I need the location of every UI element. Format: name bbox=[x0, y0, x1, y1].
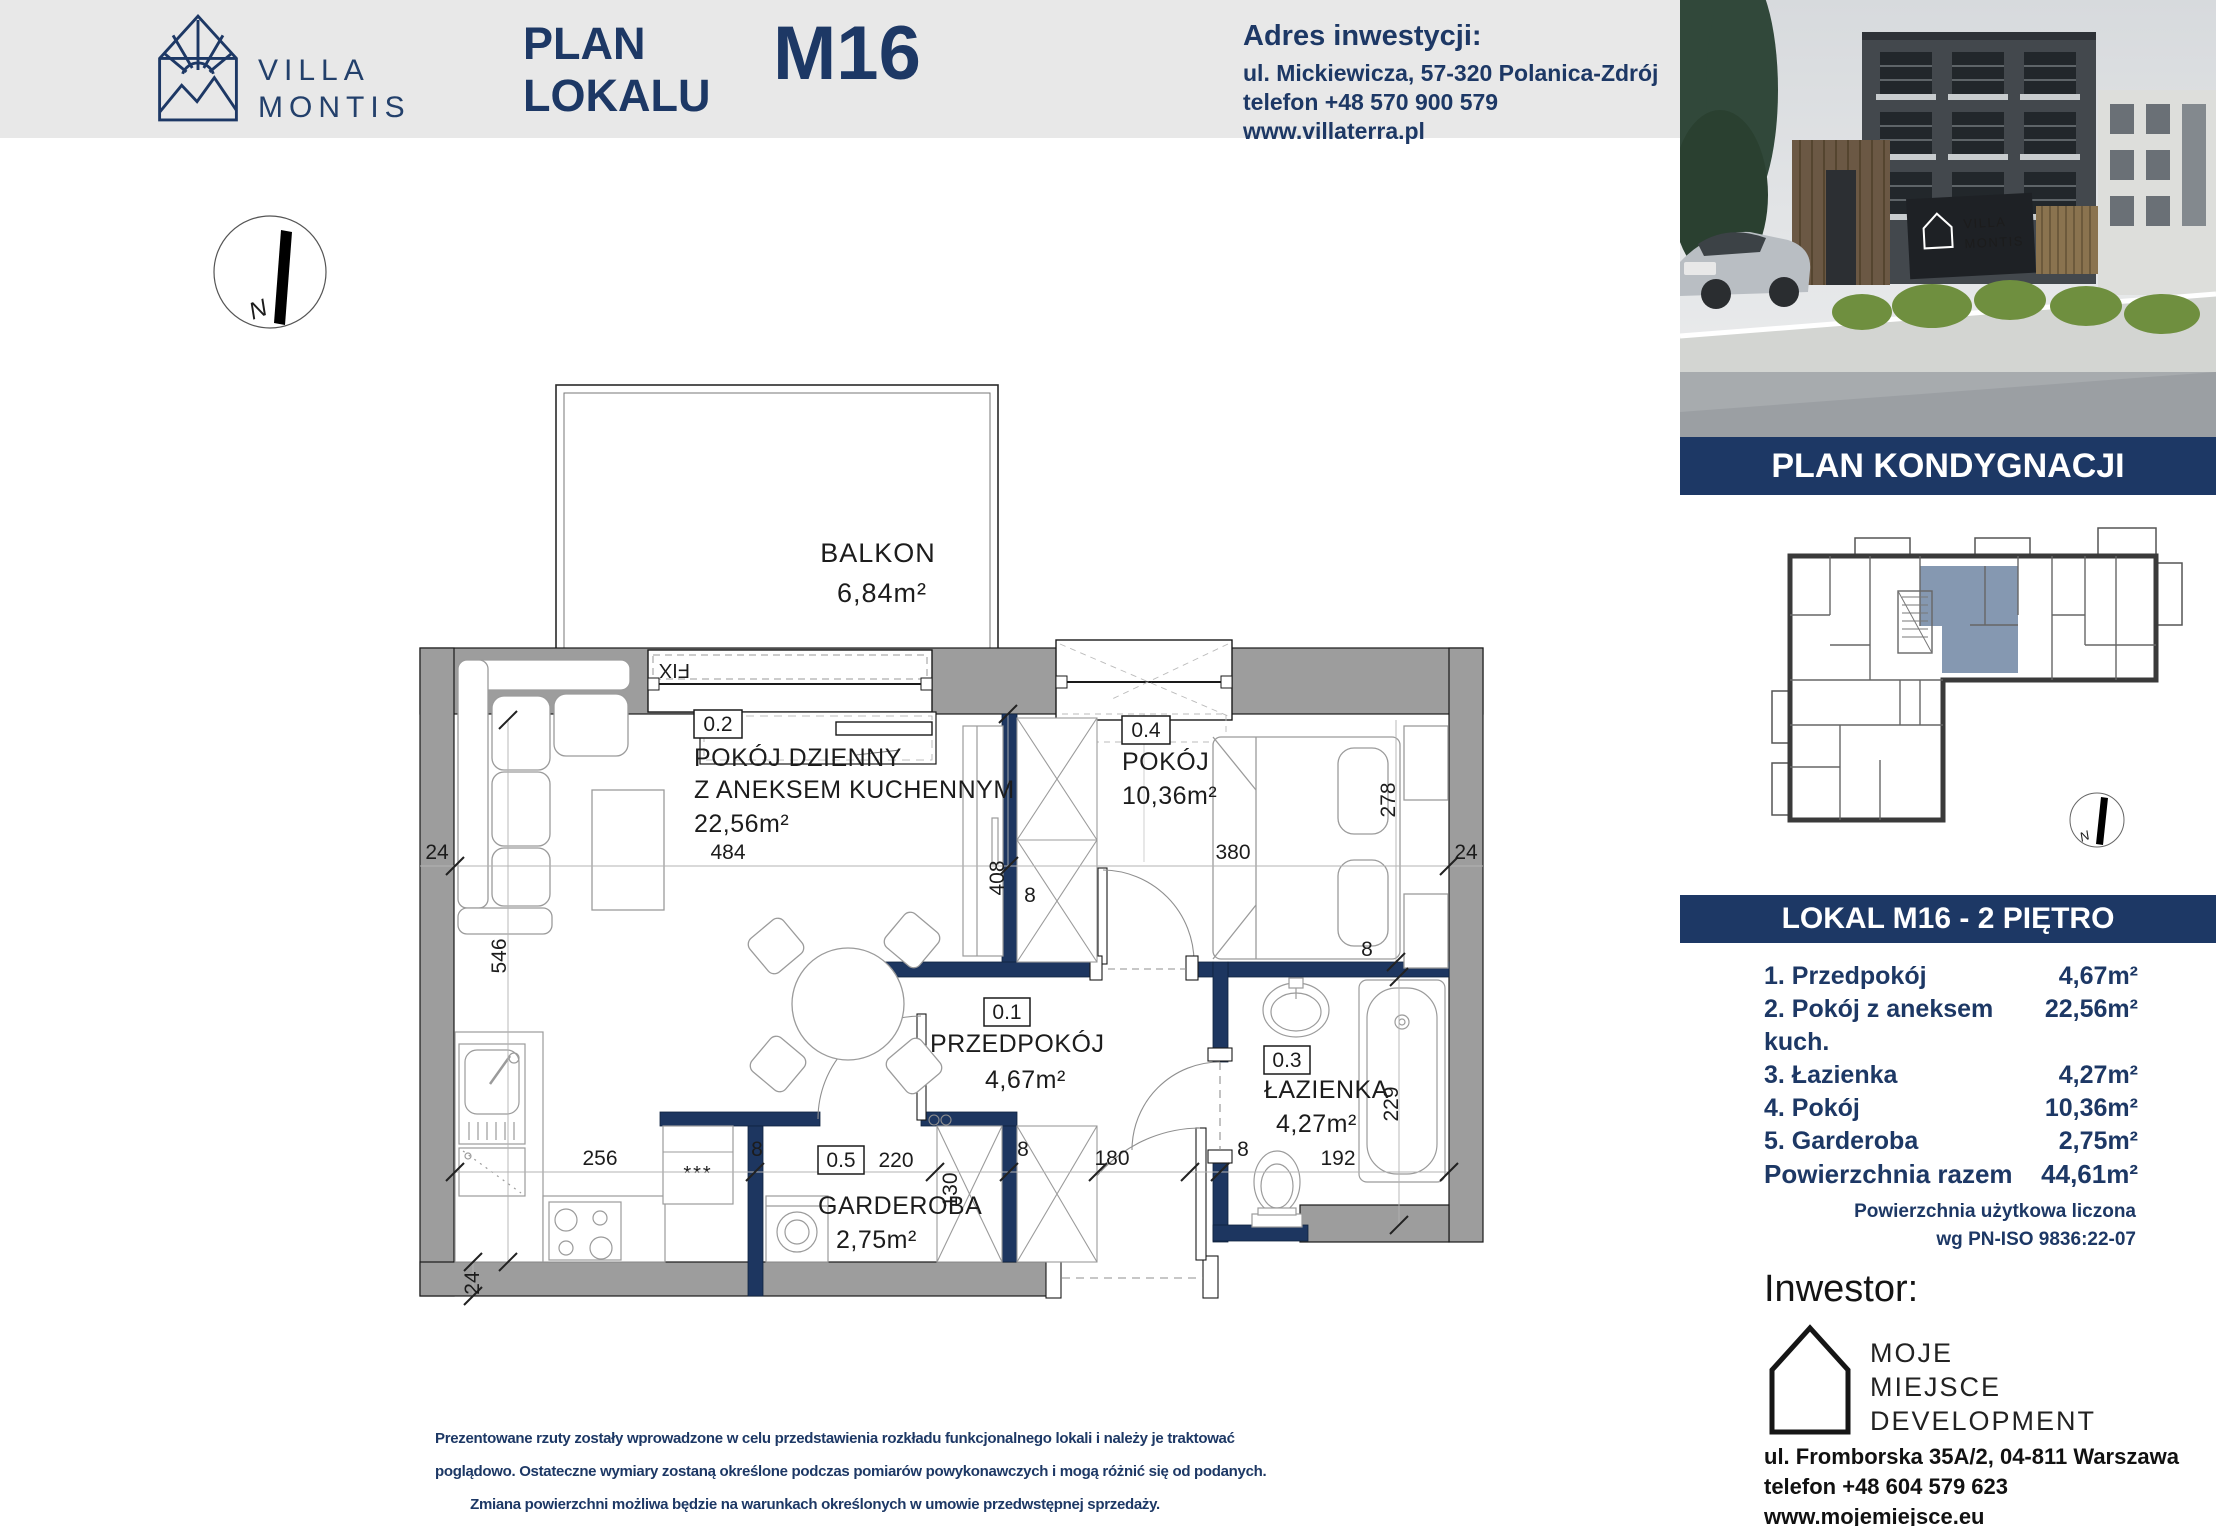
dining-table bbox=[745, 909, 945, 1097]
balcony-label: BALKON bbox=[820, 538, 936, 568]
page: VILLA MONTIS PLAN LOKALU M16 Adres inwes… bbox=[0, 0, 2216, 1526]
svg-text:ŁAZIENKA: ŁAZIENKA bbox=[1264, 1076, 1389, 1104]
coffee-table bbox=[592, 790, 664, 910]
fridge: *** bbox=[663, 1126, 733, 1204]
list-total: Powierzchnia razem44,61m² bbox=[1680, 1158, 2216, 1191]
list-item: 5. Garderoba2,75m² bbox=[1680, 1125, 2216, 1158]
wardrobe-hall bbox=[1017, 1126, 1097, 1262]
investor-address: ul. Fromborska 35A/2, 04-811 Warszawa bbox=[1764, 1442, 2179, 1472]
area-norm-note: Powierzchnia użytkowa liczona wg PN-ISO … bbox=[1756, 1198, 2136, 1254]
white-building bbox=[2098, 90, 2216, 295]
svg-text:N: N bbox=[2078, 827, 2093, 845]
svg-text:Z ANEKSEM KUCHENNYM: Z ANEKSEM KUCHENNYM bbox=[694, 776, 1015, 804]
svg-text:PRZEDPOKÓJ: PRZEDPOKÓJ bbox=[930, 1029, 1104, 1058]
svg-text:4,27m²: 4,27m² bbox=[1276, 1110, 1357, 1138]
balcony-area: 6,84m² bbox=[837, 578, 927, 608]
sidebar: VILLA MONTIS bbox=[1680, 0, 2216, 1526]
highlighted-unit bbox=[1920, 566, 2018, 673]
disclaimer-line2: poglądowo. Ostateczne wymiary zostaną ok… bbox=[435, 1455, 1195, 1488]
svg-text:VILLA: VILLA bbox=[1963, 214, 2007, 231]
list-item: 2. Pokój z aneksem kuch.22,56m² bbox=[1680, 993, 2216, 1059]
svg-text:8: 8 bbox=[1361, 938, 1373, 961]
svg-text:24: 24 bbox=[1454, 841, 1478, 864]
svg-text:0.1: 0.1 bbox=[992, 1001, 1021, 1024]
wardrobe-bedroom bbox=[1017, 718, 1097, 962]
mini-compass-icon: N bbox=[2070, 793, 2124, 847]
investor-phone: telefon +48 604 579 623 bbox=[1764, 1472, 2179, 1502]
svg-text:MONTIS: MONTIS bbox=[1964, 233, 2024, 251]
kitchen bbox=[455, 1032, 665, 1262]
svg-text:POKÓJ: POKÓJ bbox=[1122, 747, 1209, 776]
compass-icon: N bbox=[214, 216, 326, 328]
disclaimer-line1: Prezentowane rzuty zostały wprowadzone w… bbox=[435, 1422, 1195, 1455]
svg-text:8: 8 bbox=[1017, 1138, 1029, 1161]
svg-text:0.5: 0.5 bbox=[826, 1149, 855, 1172]
investor-name: MOJE MIEJSCE DEVELOPMENT bbox=[1870, 1336, 2096, 1438]
svg-text:0.2: 0.2 bbox=[703, 713, 732, 736]
room-area-list: 1. Przedpokój4,67m² 2. Pokój z aneksem k… bbox=[1680, 960, 2216, 1191]
bathroom-sink bbox=[1263, 978, 1329, 1037]
svg-text:8: 8 bbox=[1024, 884, 1036, 907]
svg-text:180: 180 bbox=[1094, 1147, 1129, 1170]
list-item: 3. Łazienka4,27m² bbox=[1680, 1059, 2216, 1092]
svg-text:380: 380 bbox=[1215, 841, 1250, 864]
fridge-mark: *** bbox=[683, 1163, 712, 1185]
svg-text:24: 24 bbox=[425, 841, 449, 864]
svg-text:10,36m²: 10,36m² bbox=[1122, 782, 1217, 810]
tv-cabinet bbox=[963, 726, 1003, 956]
svg-text:192: 192 bbox=[1320, 1147, 1355, 1170]
fix-window-label: FIX bbox=[659, 659, 690, 681]
label-bedroom: 0.4 POKÓJ 10,36m² bbox=[1122, 716, 1217, 810]
svg-text:2,75m²: 2,75m² bbox=[836, 1226, 917, 1254]
disclaimer-line3: Zmiana powierzchni możliwa będzie na war… bbox=[435, 1488, 1195, 1521]
svg-text:22,56m²: 22,56m² bbox=[694, 810, 789, 838]
investor-web: www.mojemiejsce.eu bbox=[1764, 1502, 2179, 1526]
list-item: 1. Przedpokój4,67m² bbox=[1680, 960, 2216, 993]
svg-text:0.4: 0.4 bbox=[1131, 719, 1161, 742]
investor-heading: Inwestor: bbox=[1764, 1268, 1918, 1311]
label-hall: 0.1 PRZEDPOKÓJ 4,67m² bbox=[930, 998, 1104, 1094]
mini-floor-plan: N bbox=[1680, 495, 2216, 895]
villa-montis-sign: VILLA MONTIS bbox=[1906, 193, 2036, 279]
floor-banner: PLAN KONDYGNACJI bbox=[1680, 437, 2216, 495]
slat-fence bbox=[2036, 206, 2098, 274]
investor-contact: ul. Fromborska 35A/2, 04-811 Warszawa te… bbox=[1764, 1442, 2179, 1526]
list-item: 4. Pokój10,36m² bbox=[1680, 1092, 2216, 1125]
svg-text:220: 220 bbox=[878, 1149, 913, 1172]
svg-text:8: 8 bbox=[1237, 1138, 1249, 1161]
svg-text:GARDEROBA: GARDEROBA bbox=[818, 1192, 982, 1220]
building-photo: VILLA MONTIS bbox=[1680, 0, 2216, 437]
unit-banner: LOKAL M16 - 2 PIĘTRO bbox=[1680, 895, 2216, 943]
svg-text:4,67m²: 4,67m² bbox=[985, 1066, 1066, 1094]
svg-text:N: N bbox=[246, 294, 272, 326]
svg-text:278: 278 bbox=[1377, 782, 1400, 817]
investor-logo-icon bbox=[1758, 1316, 1862, 1438]
svg-text:8: 8 bbox=[751, 1138, 763, 1161]
svg-text:256: 256 bbox=[582, 1147, 617, 1170]
svg-text:484: 484 bbox=[710, 841, 745, 864]
svg-text:0.3: 0.3 bbox=[1272, 1049, 1301, 1072]
floor-plan: N BALKON 6,84m² FIX bbox=[0, 0, 1680, 1526]
toilet bbox=[1252, 1151, 1302, 1227]
svg-text:POKÓJ DZIENNY: POKÓJ DZIENNY bbox=[694, 743, 902, 772]
disclaimer: Prezentowane rzuty zostały wprowadzone w… bbox=[435, 1422, 1195, 1521]
balcony: BALKON 6,84m² bbox=[556, 385, 998, 650]
svg-text:546: 546 bbox=[488, 938, 511, 973]
svg-text:408: 408 bbox=[986, 860, 1009, 895]
svg-text:24: 24 bbox=[461, 1271, 484, 1295]
